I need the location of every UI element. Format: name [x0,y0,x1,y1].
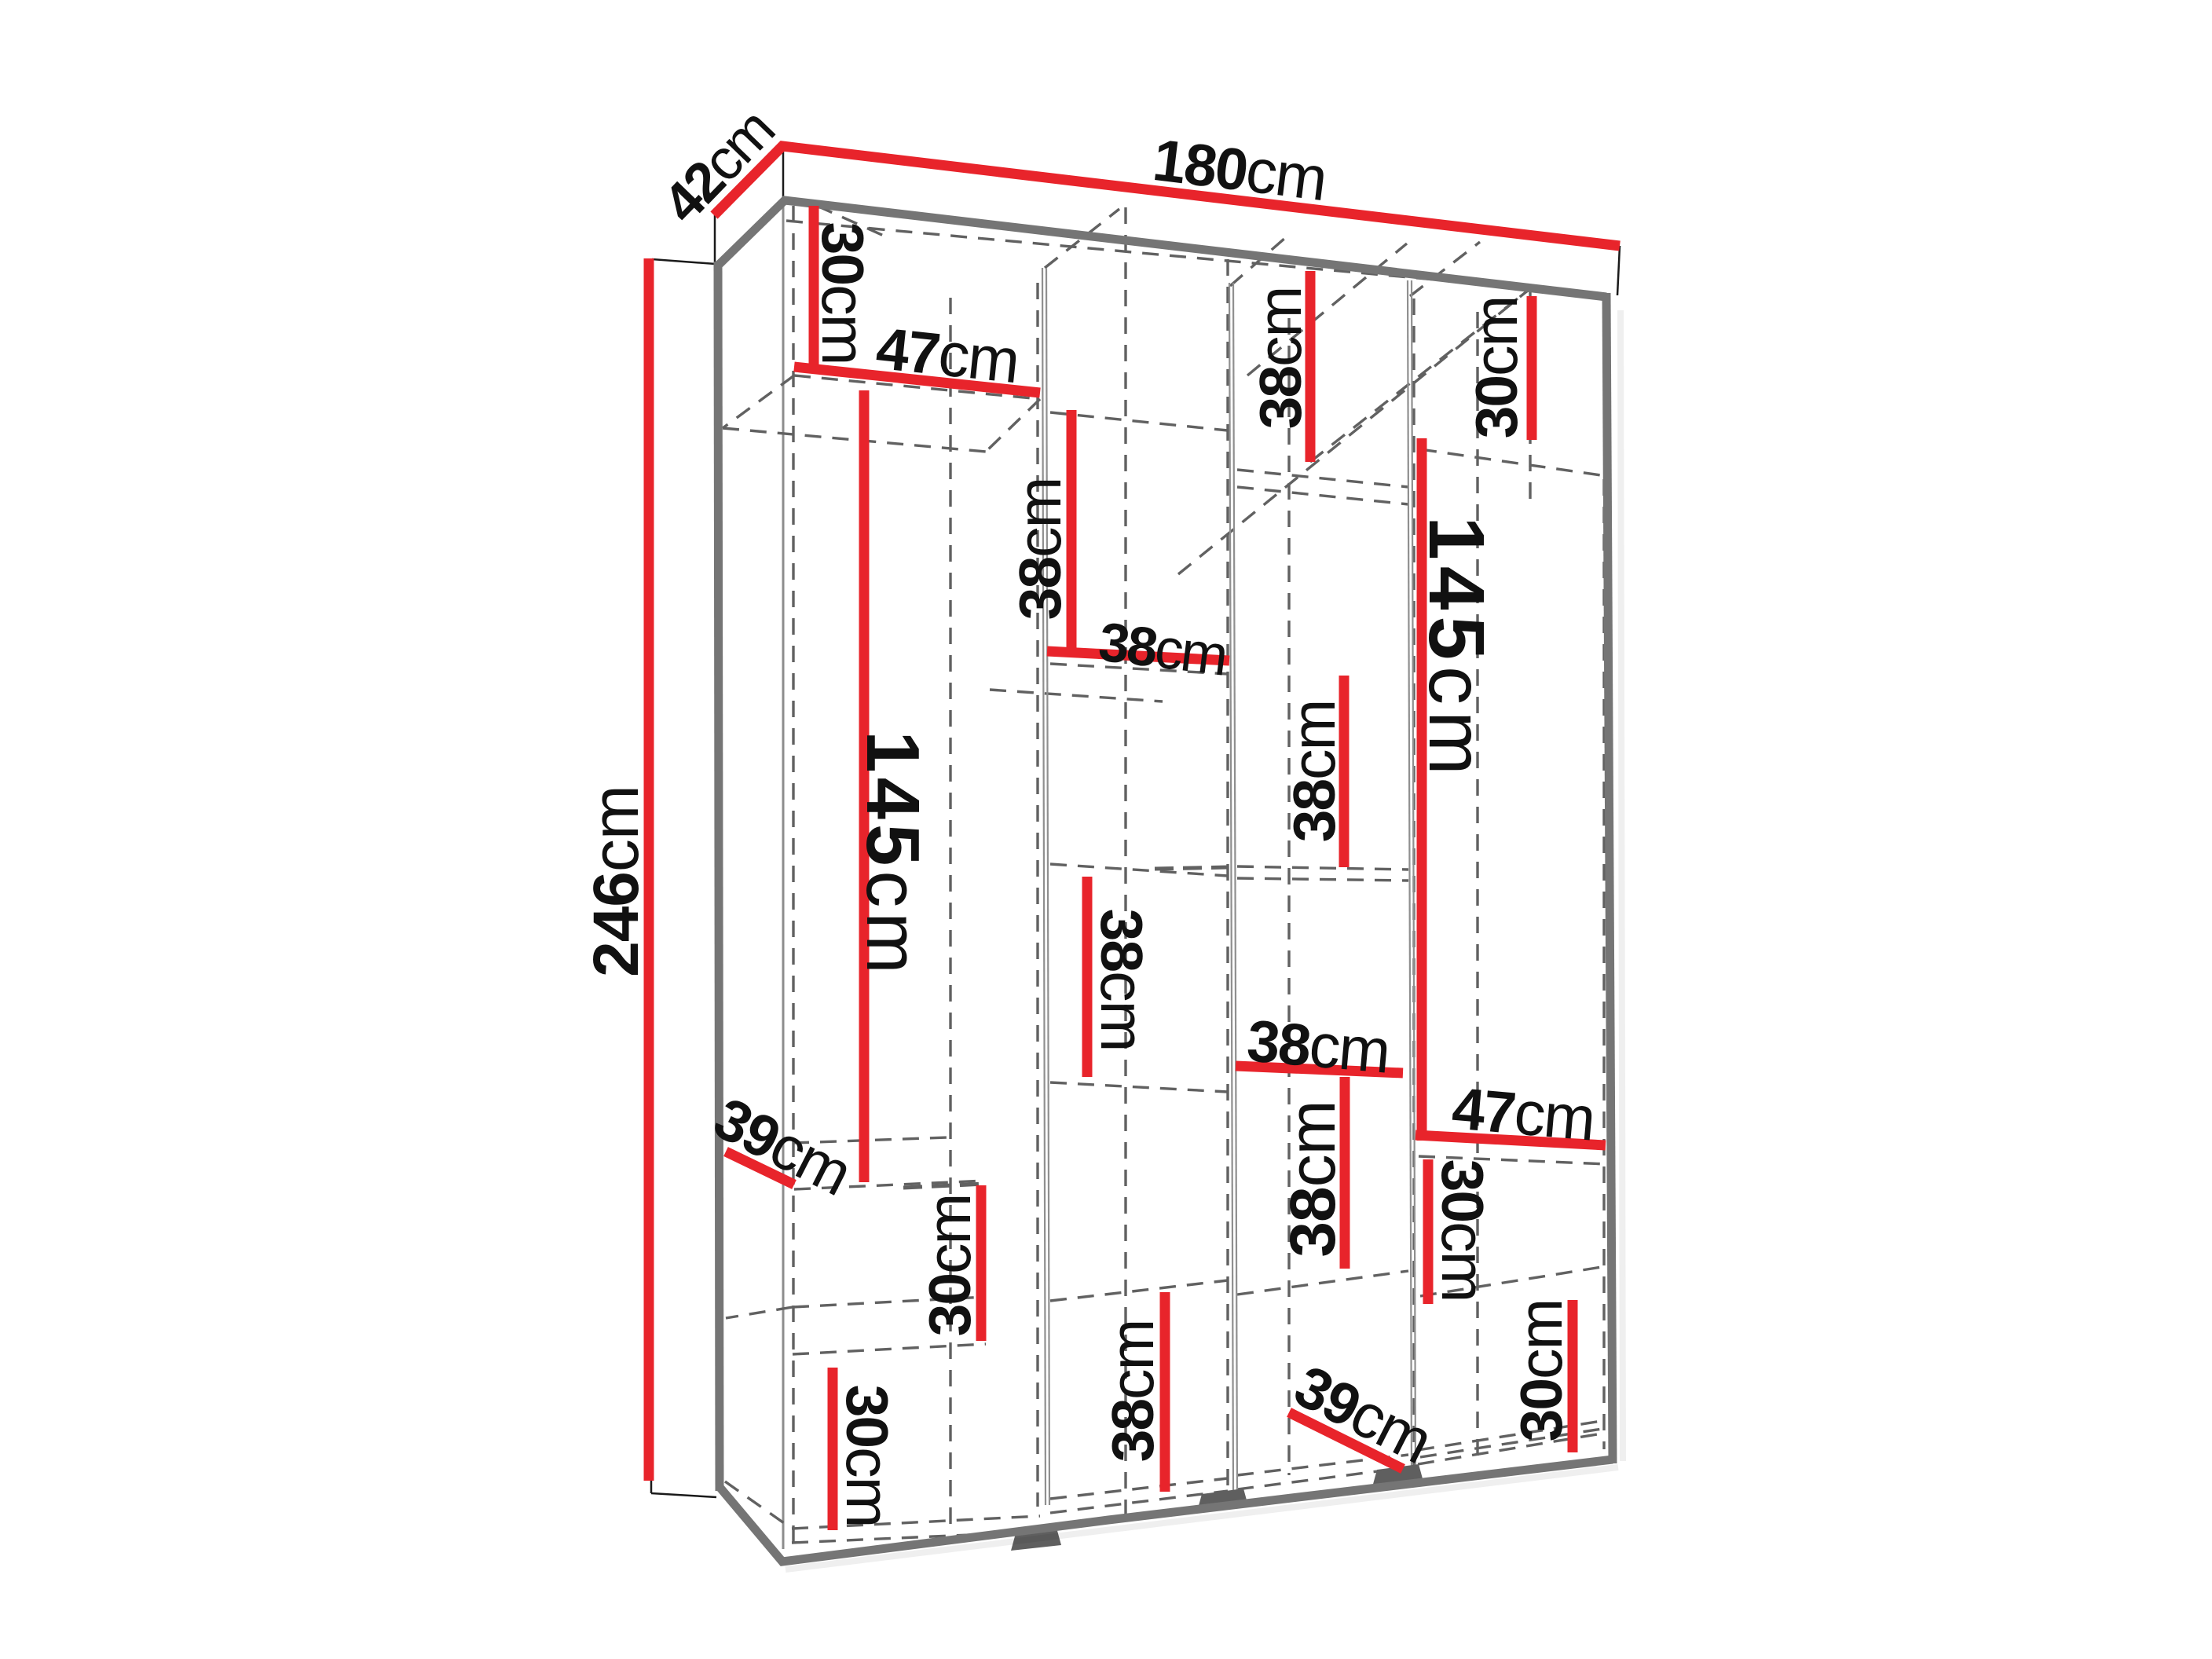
svg-text:145cm: 145cm [851,731,935,978]
svg-text:30cm: 30cm [1505,1300,1575,1442]
svg-text:47cm: 47cm [1449,1071,1597,1153]
svg-text:30cm: 30cm [914,1195,983,1337]
svg-text:38cm: 38cm [1278,701,1348,843]
svg-text:30cm: 30cm [1429,1159,1499,1302]
svg-text:145cm: 145cm [1412,516,1500,782]
svg-text:30cm: 30cm [809,222,879,364]
svg-text:38cm: 38cm [1088,909,1158,1051]
svg-text:38cm: 38cm [1244,1004,1392,1086]
svg-text:246cm: 246cm [578,786,652,977]
svg-text:38cm: 38cm [1097,1320,1166,1463]
svg-text:38cm: 38cm [1275,1101,1349,1257]
svg-text:38cm: 38cm [1004,478,1074,621]
svg-text:30cm: 30cm [833,1385,903,1527]
svg-text:30cm: 30cm [1460,297,1530,439]
svg-text:38cm: 38cm [1244,287,1314,430]
